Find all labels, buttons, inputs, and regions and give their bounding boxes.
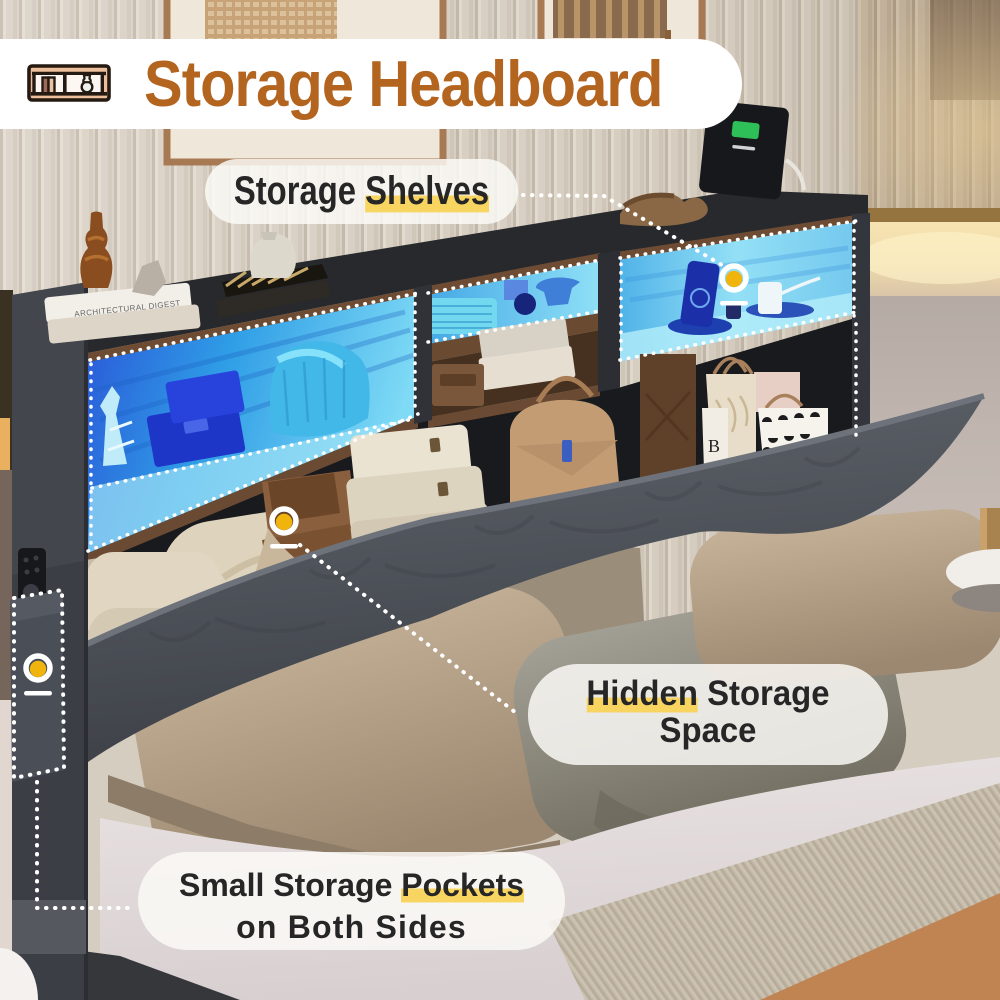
svg-text:B: B [708, 436, 720, 456]
